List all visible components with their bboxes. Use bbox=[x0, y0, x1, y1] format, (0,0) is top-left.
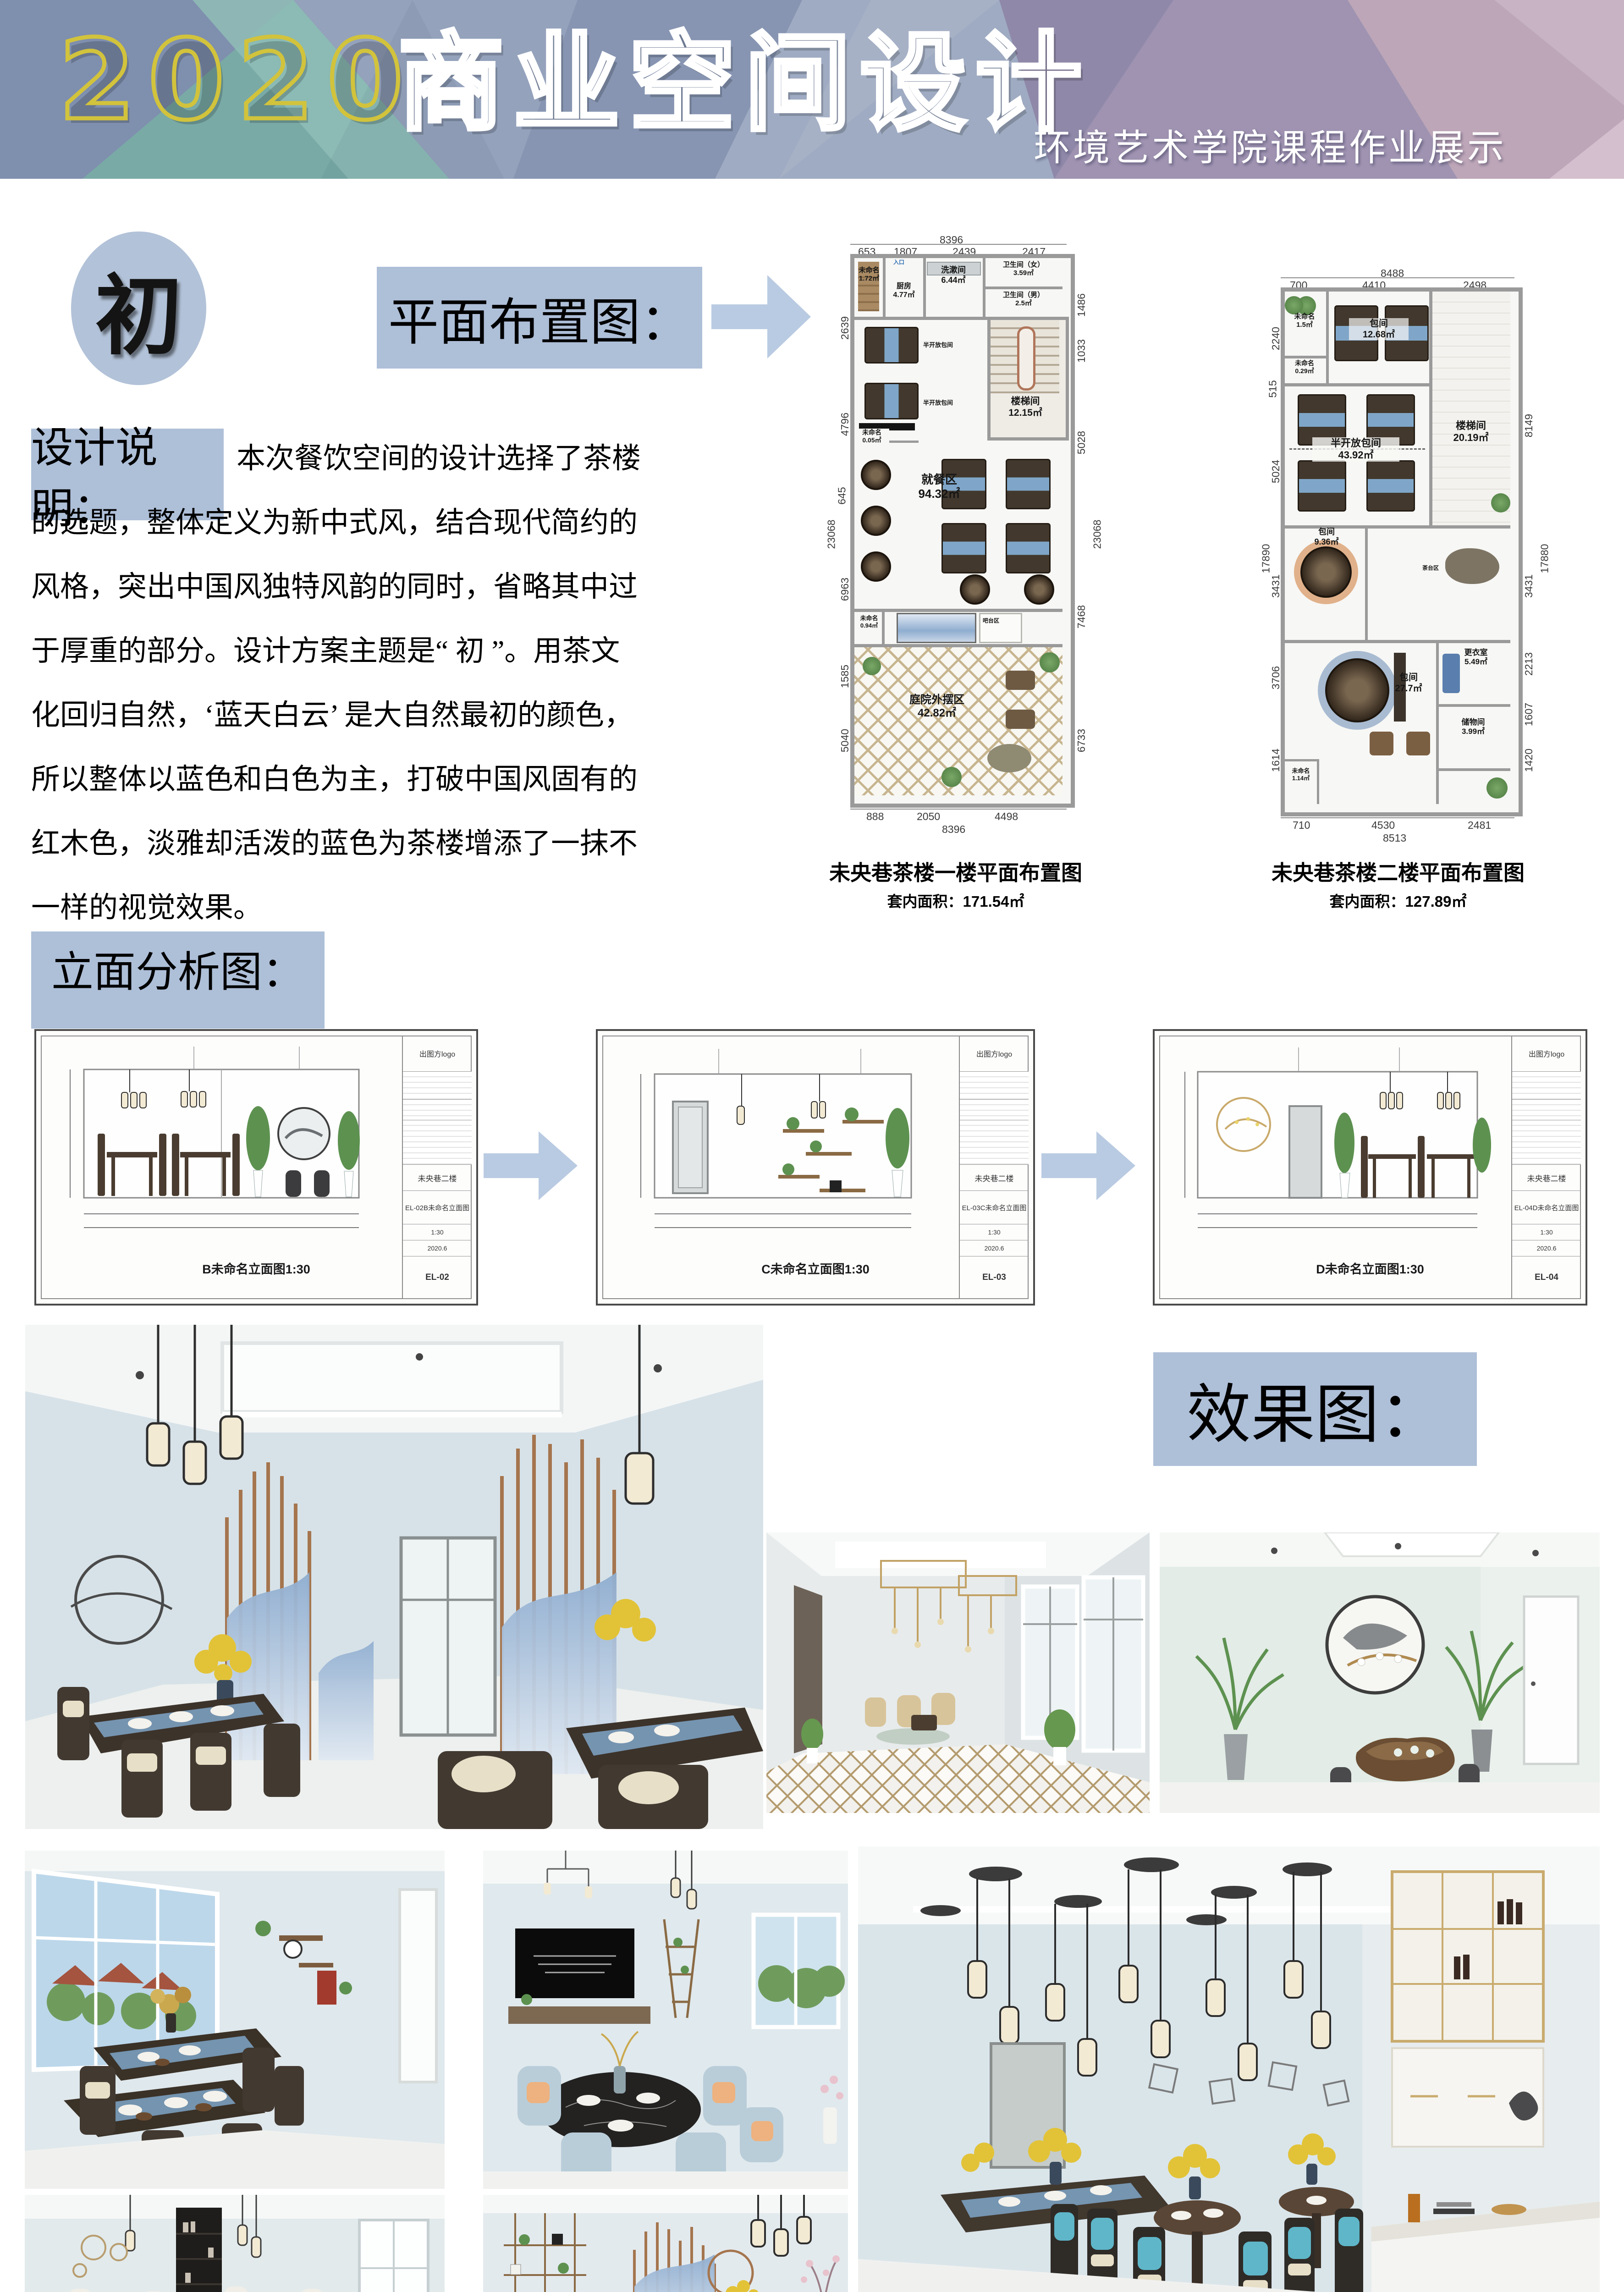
room-label: 洗漱间6.44㎡ bbox=[925, 265, 981, 285]
room-label: 储物间3.99㎡ bbox=[1443, 718, 1503, 737]
title-year-2020: 2020 2020 bbox=[59, 16, 420, 149]
round-table bbox=[1024, 574, 1054, 605]
room-label: 包间27.7㎡ bbox=[1385, 672, 1432, 694]
room-label: 更衣室5.49㎡ bbox=[1446, 648, 1506, 667]
render-section-label: 效果图： bbox=[1153, 1352, 1477, 1466]
stairwell-floor bbox=[1432, 292, 1510, 525]
wall-shelves bbox=[504, 2213, 586, 2292]
elevation-sheet-b: B未命名立面图1:30 出图方logo 未央巷二楼 EL-02B未命名立面图 1… bbox=[34, 1029, 478, 1306]
title-main: 商业空间设计 商业空间设计 bbox=[398, 24, 1095, 148]
room-label: 楼梯间20.19㎡ bbox=[1439, 420, 1503, 444]
elevation-arrow-2 bbox=[1041, 1153, 1096, 1178]
round-table bbox=[960, 574, 990, 605]
room-label: 未命名0.05㎡ bbox=[854, 429, 889, 444]
tv-screen bbox=[515, 1928, 634, 1998]
elevation-arrow-1 bbox=[484, 1153, 539, 1178]
room-label: 半开放包间43.92㎡ bbox=[1312, 437, 1399, 462]
dining-table bbox=[1298, 460, 1346, 512]
plan1-area: 套内面积：171.54㎡ bbox=[820, 889, 1091, 911]
dining-table bbox=[1366, 460, 1415, 512]
door bbox=[1524, 1597, 1578, 1764]
title-block: 出图方logo 未央巷二楼 EL-03C未命名立面图 1:30 2020.6 E… bbox=[959, 1036, 1029, 1299]
plan1-caption: 未央巷茶楼一楼平面布置图 bbox=[820, 856, 1091, 887]
rattan-chairs bbox=[865, 1693, 955, 1727]
render-photo-tea-corner bbox=[1160, 1532, 1600, 1813]
elevation-drawing-c bbox=[604, 1037, 957, 1267]
elevation-drawing-d bbox=[1161, 1037, 1509, 1267]
room-label: 包间12.68㎡ bbox=[1349, 318, 1409, 340]
patio-rock-table bbox=[987, 744, 1031, 772]
whiskey-bottle bbox=[1408, 2194, 1420, 2222]
building-outline-2: 未命名1.5㎡ 包间12.68㎡ 未命名0.29㎡ 楼梯间20.19㎡ 半开放包… bbox=[1281, 287, 1523, 816]
elevation-section-label: 立面分析图： bbox=[31, 931, 325, 1029]
room-label: 庭院外摆区42.82㎡ bbox=[891, 694, 983, 720]
plan-section-label: 平面布置图： bbox=[377, 267, 702, 369]
patio-table bbox=[1006, 710, 1035, 729]
round-table bbox=[861, 460, 891, 490]
room-label: 未命名1.72㎡ bbox=[854, 266, 884, 283]
render-photo-tea-hall bbox=[858, 1846, 1600, 2292]
patio-table bbox=[1006, 671, 1035, 690]
round-table bbox=[861, 551, 891, 582]
elevation-drawing-b bbox=[43, 1037, 400, 1267]
title-block: 出图方logo 未央巷二楼 EL-04D未命名立面图 1:30 2020.6 E… bbox=[1511, 1036, 1581, 1299]
floor-plan-2: 8488 700 4410 2498 2240 515 5024 3431 37… bbox=[1266, 268, 1530, 841]
render-photo-tv-lounge bbox=[483, 1851, 848, 2189]
svg-text:商业空间设计: 商业空间设计 bbox=[398, 24, 1091, 143]
room-label: 半开放包间 bbox=[923, 399, 962, 407]
dining-table bbox=[1006, 459, 1051, 509]
svg-text:2020: 2020 bbox=[59, 16, 416, 144]
bar-mural bbox=[897, 613, 976, 643]
room-label: 吧台区 bbox=[982, 617, 1000, 624]
elevation-arrow-2-head bbox=[1096, 1131, 1135, 1200]
stairwell bbox=[987, 317, 1069, 441]
room-label: 卫生间（女）3.59㎡ bbox=[985, 261, 1062, 277]
title-block: 出图方logo 未央巷二楼 EL-02B未命名立面图 1:30 2020.6 E… bbox=[402, 1036, 472, 1299]
wall-clock bbox=[284, 1940, 302, 1958]
room-label: 包间9.36㎡ bbox=[1301, 527, 1352, 547]
square-table bbox=[1370, 732, 1393, 755]
tv-console bbox=[508, 2006, 650, 2024]
red-sign bbox=[317, 1971, 336, 2005]
dining-table bbox=[864, 383, 919, 419]
room-label: 厨房4.77㎡ bbox=[883, 282, 925, 299]
bookshelf bbox=[176, 2208, 222, 2292]
square-table bbox=[1406, 732, 1430, 755]
room-label: 卫生间（男）2.5㎡ bbox=[985, 291, 1062, 308]
plan-arrow-head bbox=[767, 275, 811, 358]
elevation-sheet-c: C未命名立面图1:30 出图方logo 未央巷二楼 EL-03C未命名立面图 1… bbox=[596, 1029, 1035, 1306]
render-photo-window-dining bbox=[25, 1851, 445, 2189]
tea-rock-table bbox=[1445, 548, 1499, 584]
dining-table bbox=[1006, 523, 1051, 573]
wine-cabinet bbox=[1392, 1872, 1543, 2147]
render-photo-main-dining bbox=[25, 1325, 763, 1829]
design-note-text: 本次餐饮空间的设计选择了茶楼 的选题，整体定义为新中式风，结合现代简约的 风格，… bbox=[31, 426, 801, 940]
theme-character: 初 bbox=[95, 245, 182, 371]
floor-plan-1: 8396 653 1807 2439 2417 2639 4796 645 69… bbox=[830, 235, 1082, 835]
render-photo-hallway bbox=[766, 1532, 1150, 1813]
entrance-label: 入口 bbox=[887, 259, 910, 265]
round-table bbox=[861, 506, 891, 536]
elevation-arrow-1-head bbox=[539, 1131, 578, 1200]
header-subtitle: 环境艺术学院课程作业展示 bbox=[1034, 118, 1507, 171]
poster-page: 2020 2020 商业空间设计 商业空间设计 环境艺术学院课程作业展示 初 平… bbox=[0, 0, 1624, 2292]
plan2-caption: 未央巷茶楼二楼平面布置图 bbox=[1263, 856, 1533, 887]
room-label: 楼梯间12.15㎡ bbox=[992, 396, 1059, 419]
room-label: 未命名1.5㎡ bbox=[1285, 313, 1324, 329]
render-photo-bookshelf-dining bbox=[25, 2195, 445, 2292]
octagon-table bbox=[1300, 546, 1352, 598]
theme-badge: 初 bbox=[71, 231, 206, 385]
elevation-sheet-d: D未命名立面图1:30 出图方logo 未央巷二楼 EL-04D未命名立面图 1… bbox=[1153, 1029, 1587, 1306]
room-label: 未命名0.94㎡ bbox=[854, 615, 884, 629]
room-label: 就餐区94.32㎡ bbox=[900, 473, 978, 501]
building-outline-1: 未命名1.72㎡ 厨房4.77㎡ 洗漱间6.44㎡ 卫生间（女）3.59㎡ 卫生… bbox=[850, 254, 1075, 808]
render-photo-screen-dining bbox=[483, 2195, 848, 2292]
plan-arrow-shaft bbox=[711, 304, 767, 329]
dining-table bbox=[864, 327, 919, 364]
dining-table bbox=[941, 523, 986, 573]
plan2-area: 套内面积：127.89㎡ bbox=[1263, 889, 1533, 911]
room-label: 未命名0.29㎡ bbox=[1285, 359, 1324, 375]
flower-table bbox=[1325, 658, 1389, 722]
room-label: 未命名1.14㎡ bbox=[1285, 767, 1317, 782]
room-label: 茶台区 bbox=[1420, 565, 1441, 571]
room-label: 半开放包间 bbox=[923, 342, 962, 349]
